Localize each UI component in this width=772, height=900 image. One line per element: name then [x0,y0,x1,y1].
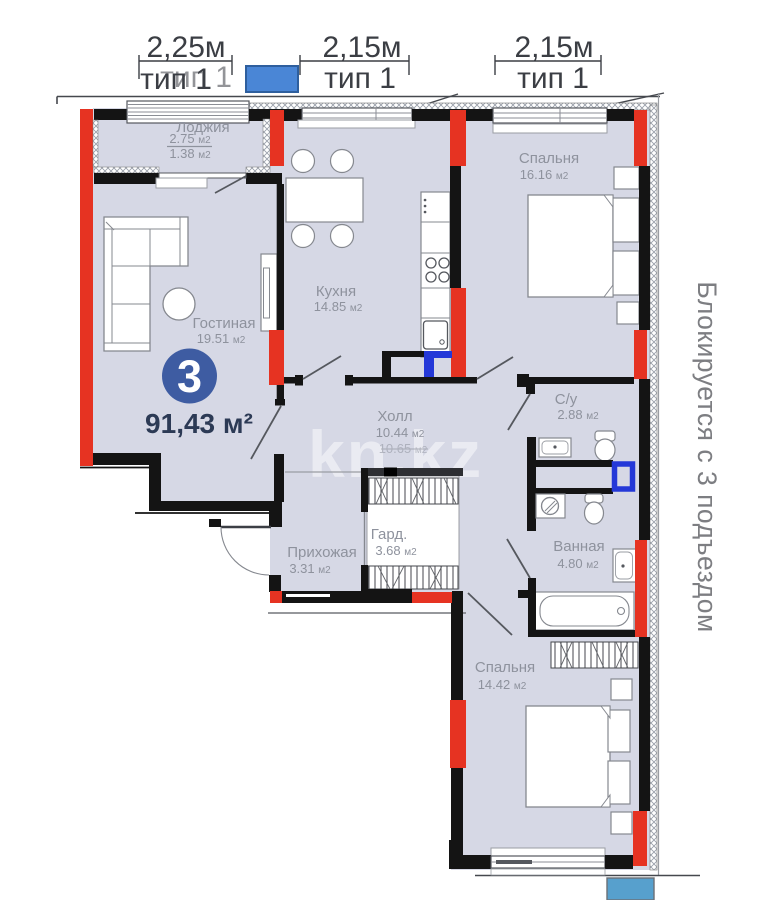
svg-text:2,15м: 2,15м [322,31,401,64]
svg-text:2,15м: 2,15м [514,31,593,64]
svg-text:Спальня: Спальня [519,150,579,167]
svg-text:Кухня: Кухня [316,283,356,300]
svg-text:Спальня: Спальня [475,659,535,676]
svg-text:Гостиная: Гостиная [193,315,256,332]
svg-text:Прихожая: Прихожая [287,544,357,561]
svg-text:3: 3 [177,351,202,402]
svg-text:2,25м: 2,25м [146,31,225,64]
svg-text:91,43 м²: 91,43 м² [145,408,253,439]
svg-text:тип 1: тип 1 [517,62,589,95]
svg-text:Блокируется с 3 подъездом: Блокируется с 3 подъездом [692,281,722,632]
svg-text:С/у: С/у [555,391,578,408]
svg-text:Гард.: Гард. [371,526,408,543]
svg-text:тип 1: тип 1 [160,61,232,94]
svg-text:Ванная: Ванная [553,538,604,555]
svg-text:Холл: Холл [377,408,412,425]
svg-text:тип 1: тип 1 [324,62,396,95]
